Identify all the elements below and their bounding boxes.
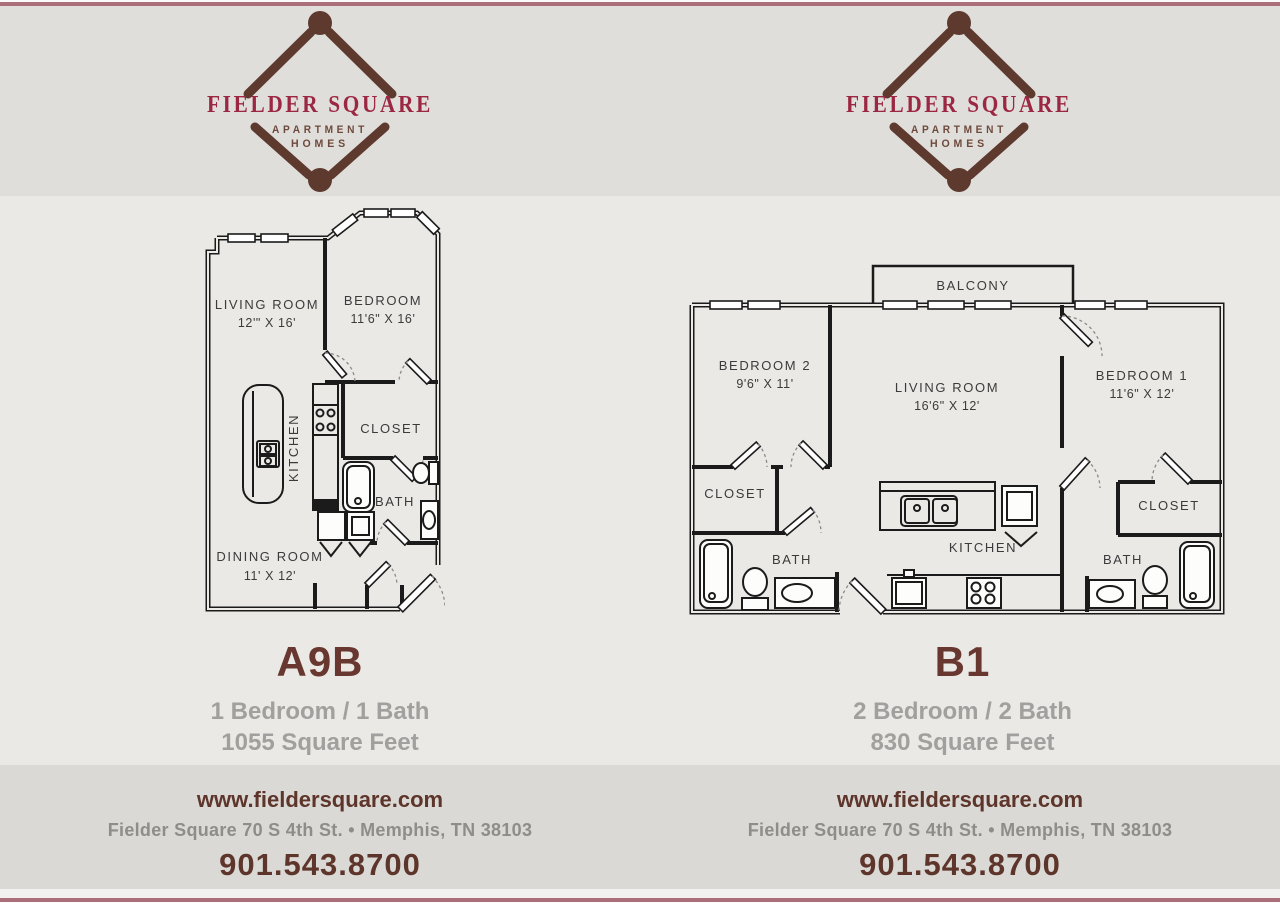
room-label-bath-right: BATH [1103, 552, 1143, 567]
room-label-kitchen: KITCHEN [949, 540, 1017, 555]
room-label-balcony: BALCONY [936, 278, 1009, 293]
room-label-bath: BATH [375, 494, 415, 509]
logo-name-text: FIELDER SQUARE [207, 92, 433, 118]
stove-icon [967, 578, 1001, 608]
fielder-square-logo-left: FIELDER SQUARE APARTMENT HOMES [170, 6, 470, 194]
toilet-icon [742, 568, 768, 610]
logo-subtitle-1: APARTMENT [911, 124, 1007, 136]
toilet-icon [1143, 566, 1167, 608]
room-dims-bedroom1: 11'6" X 12' [1110, 387, 1175, 401]
room-label-closet-left: CLOSET [704, 486, 766, 501]
website-text: www.fieldersquare.com [700, 787, 1220, 813]
address-text: Fielder Square 70 S 4th St. • Memphis, T… [60, 820, 580, 841]
website-text: www.fieldersquare.com [60, 787, 580, 813]
room-label-dining: DINING ROOM [216, 549, 323, 564]
bottom-light-strip [0, 889, 1280, 898]
plan-b1-title-block: B1 2 Bedroom / 2 Bath 830 Square Feet [690, 638, 1235, 758]
room-label-kitchen: KITCHEN [286, 414, 301, 482]
room-dims-living: 12'" X 16' [238, 316, 296, 330]
kitchen-island-icon [880, 482, 995, 530]
plan-a9b-sqft: 1055 Square Feet [195, 727, 445, 758]
phone-text: 901.543.8700 [700, 847, 1220, 883]
logo-name-text: FIELDER SQUARE [846, 92, 1072, 118]
floorplan-a9b: LIVING ROOM 12'" X 16' BEDROOM 11'6" X 1… [195, 205, 445, 620]
bathtub-icon [700, 540, 732, 608]
sink-icon [1089, 580, 1135, 608]
fielder-square-logo-right: FIELDER SQUARE APARTMENT HOMES [809, 6, 1109, 194]
room-label-living: LIVING ROOM [895, 380, 999, 395]
floorplan-b1: BALCONY [685, 258, 1230, 620]
room-dims-bedroom: 11'6" X 16' [351, 312, 416, 326]
bathtub-icon [343, 462, 374, 512]
window-icon [710, 301, 1147, 309]
bathtub-icon [1180, 542, 1214, 608]
plan-b1-sqft: 830 Square Feet [690, 727, 1235, 758]
sink-icon [775, 578, 835, 608]
sink-icon [421, 501, 438, 539]
stove-icon [313, 384, 338, 511]
cabinet-icon [318, 512, 374, 556]
plan-a9b-beds-baths: 1 Bedroom / 1 Bath [195, 696, 445, 727]
room-label-bedroom: BEDROOM [344, 293, 422, 308]
logo-subtitle-1: APARTMENT [272, 124, 368, 136]
plan-a9b-title-block: A9B 1 Bedroom / 1 Bath 1055 Square Feet [195, 638, 445, 758]
address-text: Fielder Square 70 S 4th St. • Memphis, T… [700, 820, 1220, 841]
room-label-living: LIVING ROOM [215, 297, 319, 312]
contact-block-left: www.fieldersquare.com Fielder Square 70 … [60, 787, 580, 883]
room-label-closet: CLOSET [360, 421, 422, 436]
room-label-bedroom1: BEDROOM 1 [1096, 368, 1188, 383]
room-dims-bedroom2: 9'6" X 11' [736, 377, 793, 391]
kitchen-island-icon [243, 385, 283, 503]
room-label-bath-left: BATH [772, 552, 812, 567]
room-dims-living: 16'6" X 12' [914, 399, 980, 413]
plan-code-a9b: A9B [195, 638, 445, 686]
logo-subtitle-2: HOMES [291, 138, 349, 150]
fridge-icon [1002, 486, 1037, 546]
phone-text: 901.543.8700 [60, 847, 580, 883]
plan-code-b1: B1 [690, 638, 1235, 686]
plan-b1-beds-baths: 2 Bedroom / 2 Bath [690, 696, 1235, 727]
toilet-icon [413, 462, 438, 484]
room-label-closet-right: CLOSET [1138, 498, 1200, 513]
contact-block-right: www.fieldersquare.com Fielder Square 70 … [700, 787, 1220, 883]
logo-subtitle-2: HOMES [930, 138, 988, 150]
room-dims-dining: 11' X 12' [244, 569, 296, 583]
room-label-bedroom2: BEDROOM 2 [719, 358, 811, 373]
